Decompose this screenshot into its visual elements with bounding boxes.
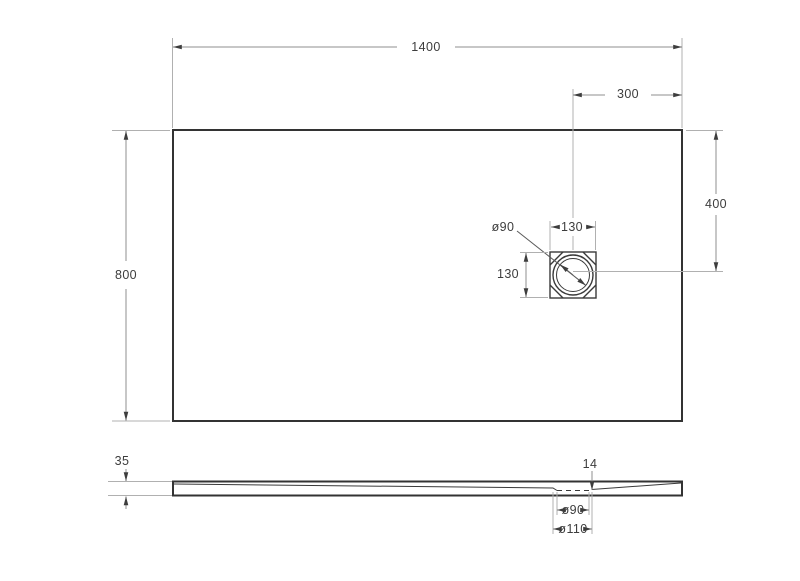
drain-flange-width-label: 130 — [561, 220, 583, 234]
drain-hole-diameter-label: ø90 — [562, 503, 585, 517]
drain-hole-diameter-label: ø90 — [492, 220, 515, 234]
side-view: 35 14 ø90 ø110 — [108, 454, 682, 536]
tray-surface-slope-left — [174, 484, 557, 491]
drain-offset-top-label: 400 — [705, 197, 727, 211]
drain-offset-right-label: 300 — [617, 87, 639, 101]
drain-diameter-leader-line — [517, 231, 586, 285]
top-view: ø90 1400 300 400 — [112, 38, 727, 421]
drain-recess-diameter-label: ø110 — [558, 522, 587, 536]
overall-depth-label: 800 — [115, 268, 137, 282]
dim-overall-depth: 800 — [112, 131, 170, 422]
dim-drain-flange-height: 130 — [497, 253, 548, 298]
tray-outline-top-view — [173, 130, 682, 421]
technical-drawing-page: ø90 1400 300 400 — [0, 0, 800, 581]
edge-height-label: 35 — [115, 454, 130, 468]
drain-diameter-arrow-line — [560, 265, 573, 275]
dim-drain-offset-top: 400 — [573, 131, 727, 272]
overall-width-label: 1400 — [411, 40, 440, 54]
drain-depth-label: 14 — [583, 457, 598, 471]
dim-drain-depth: 14 — [583, 457, 598, 490]
shower-tray-drawing: ø90 1400 300 400 — [0, 0, 800, 581]
drain-flange-height-label: 130 — [497, 267, 519, 281]
tray-surface-slope-right — [592, 483, 682, 490]
dim-overall-width: 1400 — [173, 38, 683, 128]
dim-edge-height: 35 — [108, 454, 172, 509]
dim-drain-offset-right: 300 — [573, 87, 682, 250]
